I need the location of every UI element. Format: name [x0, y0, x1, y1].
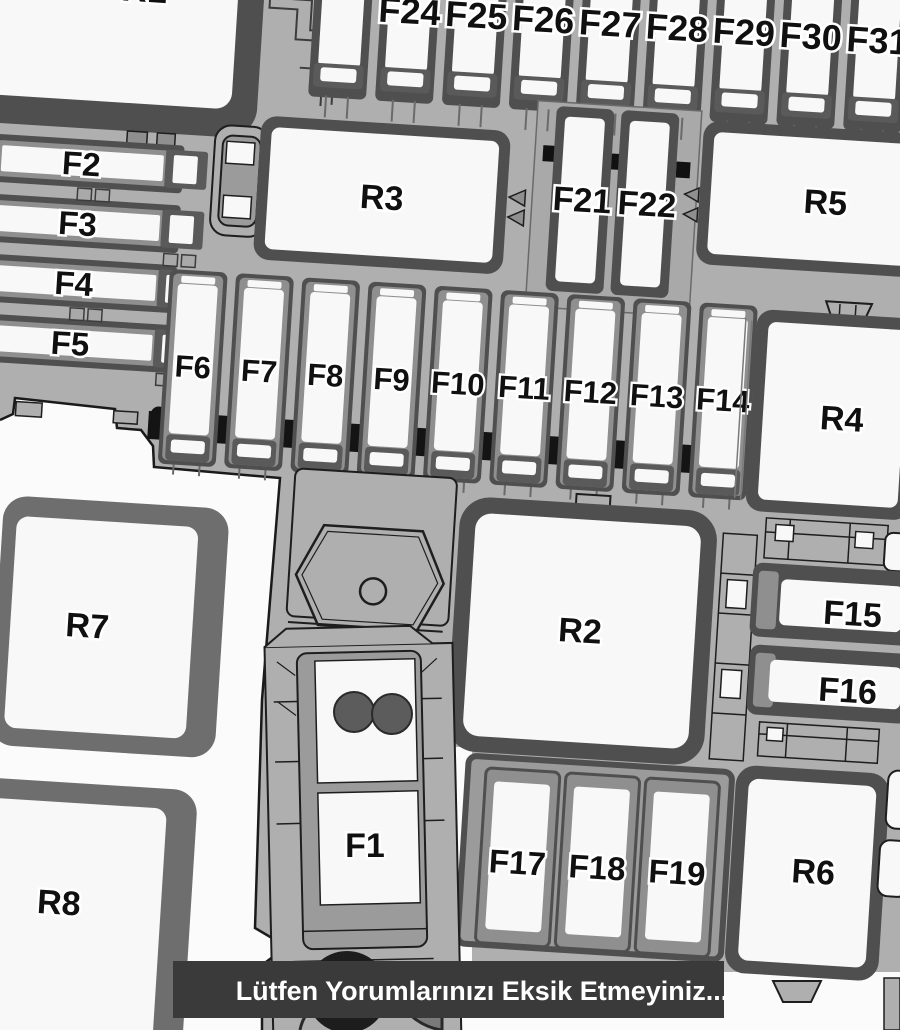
svg-text:F5: F5	[50, 324, 91, 363]
svg-text:F17: F17	[488, 842, 547, 882]
svg-text:F24: F24	[377, 0, 441, 33]
svg-text:F1: F1	[345, 827, 385, 865]
svg-text:F28: F28	[645, 5, 709, 50]
svg-text:F16: F16	[817, 671, 878, 713]
svg-text:F3: F3	[57, 204, 98, 243]
svg-text:F19: F19	[647, 852, 706, 892]
svg-text:F2: F2	[61, 144, 102, 183]
svg-text:R2: R2	[557, 611, 603, 652]
svg-text:F14: F14	[695, 381, 751, 419]
svg-text:R5: R5	[802, 183, 848, 224]
svg-text:R7: R7	[64, 606, 110, 647]
svg-text:F7: F7	[240, 353, 278, 390]
svg-text:F29: F29	[712, 10, 776, 55]
svg-text:F12: F12	[563, 373, 619, 411]
svg-text:R3: R3	[359, 178, 405, 219]
svg-text:F4: F4	[53, 264, 94, 303]
svg-text:F25: F25	[444, 0, 508, 38]
svg-text:F6: F6	[174, 348, 212, 385]
svg-text:F9: F9	[372, 361, 410, 398]
svg-text:F31: F31	[845, 18, 900, 63]
svg-text:F26: F26	[511, 0, 575, 42]
svg-text:F10: F10	[430, 365, 486, 403]
svg-text:F21: F21	[552, 180, 613, 222]
svg-text:F11: F11	[497, 369, 551, 407]
svg-text:R6: R6	[790, 852, 836, 893]
svg-text:F30: F30	[779, 14, 843, 59]
svg-text:Lütfen Yorumlarınızı Eksik Etm: Lütfen Yorumlarınızı Eksik Etmeyiniz...	[236, 976, 729, 1006]
svg-text:F22: F22	[616, 184, 677, 226]
svg-text:F13: F13	[629, 377, 685, 415]
svg-text:F18: F18	[568, 847, 627, 887]
svg-text:F27: F27	[578, 1, 642, 46]
svg-text:R8: R8	[36, 883, 82, 924]
svg-text:F15: F15	[822, 594, 883, 636]
svg-text:R4: R4	[819, 399, 865, 440]
svg-text:F8: F8	[306, 357, 344, 394]
